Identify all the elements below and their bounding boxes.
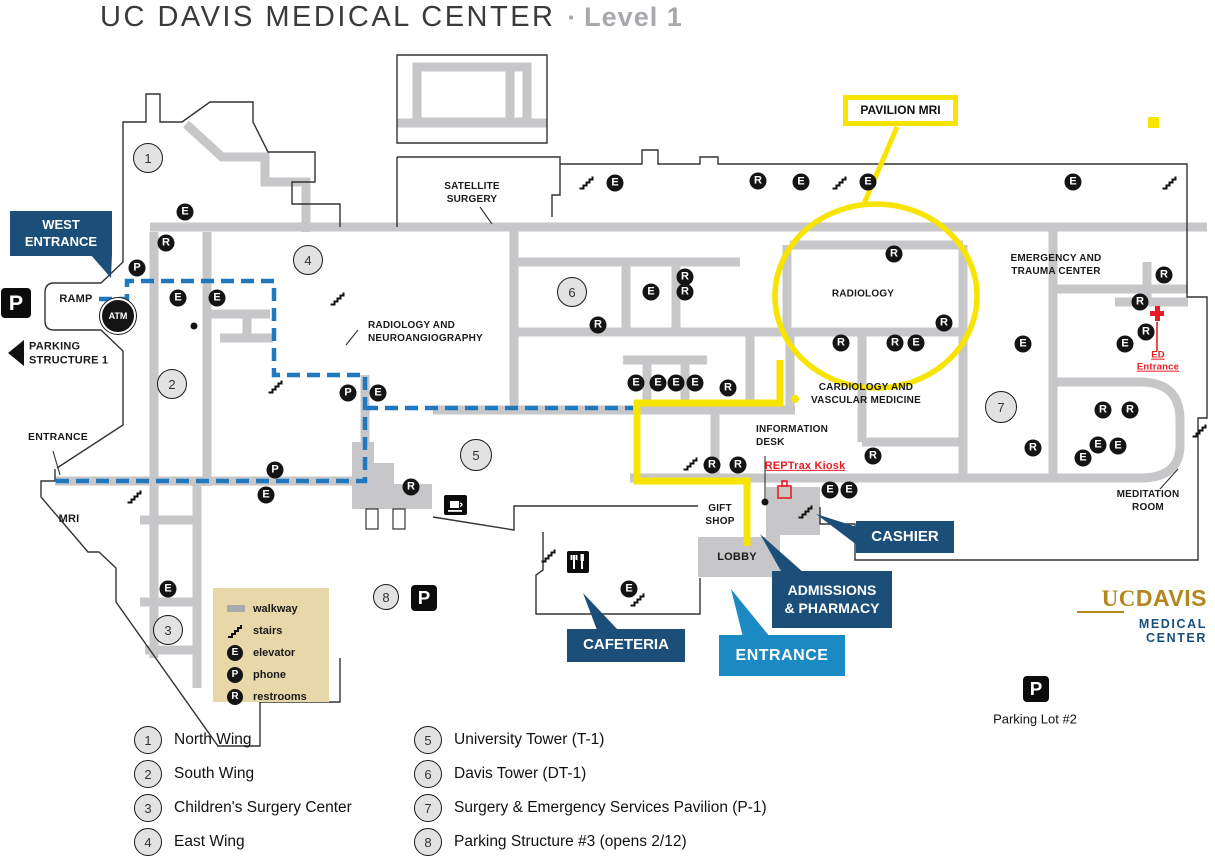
restrooms-icon: R <box>403 479 420 496</box>
elevator-icon: E <box>1090 437 1107 454</box>
walkway-swatch <box>227 605 253 612</box>
phone-icon: P <box>129 260 146 277</box>
map-label-emergency-trauma: EMERGENCY AND TRAUMA CENTER <box>1011 252 1102 278</box>
elevator-icon: E <box>860 174 877 191</box>
elevator-icon: E <box>160 581 177 598</box>
key-label-6: Davis Tower (DT-1) <box>454 765 586 783</box>
stairs-icon <box>630 592 647 607</box>
legend-item-stairs: stairs <box>227 620 329 641</box>
restrooms-icon: R <box>1025 440 1042 457</box>
elevator-icon: E <box>793 174 810 191</box>
restrooms-icon: R <box>720 380 737 397</box>
elevator-icon: E <box>227 645 253 661</box>
stairs-icon <box>330 291 347 306</box>
elevator-icon: E <box>177 204 194 221</box>
key-number-5: 5 <box>414 726 442 754</box>
legend-label: phone <box>253 669 286 681</box>
stairs-icon <box>541 548 558 563</box>
restrooms-icon: R <box>1156 267 1173 284</box>
map-label-entrance-west-side: ENTRANCE <box>28 431 88 445</box>
map-label-radiology-neuro: RADIOLOGY AND NEUROANGIOGRAPHY <box>368 319 483 345</box>
map-label-parking-structure-1: PARKING STRUCTURE 1 <box>29 340 108 369</box>
key-label-3: Children's Surgery Center <box>174 799 352 817</box>
elevator-icon: E <box>258 487 275 504</box>
map-number-5: 5 <box>460 439 492 471</box>
restrooms-icon: R <box>1132 294 1149 311</box>
key-number-4: 4 <box>134 828 162 856</box>
restrooms-icon: R <box>677 284 694 301</box>
legend-item-walkway: walkway <box>227 598 329 619</box>
legend-label: restrooms <box>253 691 307 703</box>
map-label-mri: MRI <box>59 512 80 526</box>
map-number-2: 2 <box>157 369 187 399</box>
map-label-cardiology: CARDIOLOGY AND VASCULAR MEDICINE <box>811 381 921 407</box>
legend-label: stairs <box>253 625 282 637</box>
parking-icon: P <box>1 288 31 318</box>
key-label-5: University Tower (T-1) <box>454 731 604 749</box>
callout-admissions-pharmacy: ADMISSIONS & PHARMACY <box>772 571 892 628</box>
restrooms-icon: R <box>887 335 904 352</box>
key-number-3: 3 <box>134 794 162 822</box>
stairs-icon <box>127 489 144 504</box>
restrooms-icon: R <box>750 173 767 190</box>
legend-item-restrooms: Rrestrooms <box>227 686 329 707</box>
logo-uc: UC <box>1102 586 1136 611</box>
restrooms-icon: R <box>730 457 747 474</box>
logo-medical-center: MEDICAL CENTER <box>1077 617 1207 645</box>
key-label-8: Parking Structure #3 (opens 2/12) <box>454 833 687 851</box>
logo-davis: DAVIS <box>1136 585 1207 611</box>
key-number-6: 6 <box>414 760 442 788</box>
parking-lot-2-label: Parking Lot #2 <box>993 712 1077 727</box>
elevator-icon: E <box>170 290 187 307</box>
key-item-8: 8Parking Structure #3 (opens 2/12) <box>414 825 834 859</box>
key-item-5: 5University Tower (T-1) <box>414 723 834 757</box>
callout-cashier: CASHIER <box>856 521 954 553</box>
restrooms-icon: R <box>1122 402 1139 419</box>
restrooms-icon: R <box>1138 324 1155 341</box>
legend-label: walkway <box>253 603 298 615</box>
callout-main-entrance: ENTRANCE <box>719 635 845 676</box>
map-dot <box>191 323 198 330</box>
key-list-column-2: 5University Tower (T-1)6Davis Tower (DT-… <box>414 723 834 859</box>
restrooms-icon: R <box>936 315 953 332</box>
map-number-7: 7 <box>985 391 1017 423</box>
key-number-1: 1 <box>134 726 162 754</box>
floor-map-page: UC DAVIS MEDICAL CENTER·Level 1 <box>0 0 1215 861</box>
map-number-3: 3 <box>153 615 183 645</box>
map-legend: walkwaystairsEelevatorPphoneRrestrooms <box>213 588 329 702</box>
map-label-ramp: RAMP <box>59 292 92 306</box>
key-label-7: Surgery & Emergency Services Pavilion (P… <box>454 799 767 817</box>
map-label-ed-entrance: ED Entrance <box>1130 350 1187 375</box>
restrooms-icon: R <box>158 235 175 252</box>
elevator-icon: E <box>227 645 243 661</box>
map-label-lobby: LOBBY <box>717 550 757 564</box>
key-label-2: South Wing <box>174 765 254 783</box>
map-label-radiology: RADIOLOGY <box>832 288 894 301</box>
stairs-icon <box>832 175 849 190</box>
ucdavis-logo: UCDAVIS MEDICAL CENTER <box>1077 587 1207 645</box>
map-label-gift-shop: GIFT SHOP <box>705 502 734 528</box>
elevator-icon: E <box>822 482 839 499</box>
phone-icon: P <box>227 667 243 683</box>
map-label-reptrax-kiosk: REPTrax Kiosk <box>765 459 846 473</box>
restrooms-icon: R <box>1095 402 1112 419</box>
key-label-1: North Wing <box>174 731 252 749</box>
restrooms-icon: R <box>227 689 243 705</box>
restrooms-icon: R <box>590 317 607 334</box>
callout-pavilion-mri: PAVILION MRI <box>843 95 958 126</box>
parking-icon: P <box>411 585 437 611</box>
logo-rule <box>1077 611 1124 613</box>
map-dot <box>762 499 769 506</box>
elevator-icon: E <box>1117 336 1134 353</box>
legend-label: elevator <box>253 647 295 659</box>
key-number-2: 2 <box>134 760 162 788</box>
stairs-icon <box>798 504 815 519</box>
restrooms-icon: R <box>886 246 903 263</box>
map-label-information-desk: INFORMATION DESK <box>756 423 828 449</box>
stairs-icon <box>1192 423 1209 438</box>
elevator-icon: E <box>650 375 667 392</box>
legend-items: walkwaystairsEelevatorPphoneRrestrooms <box>227 598 329 707</box>
map-label-satellite-surgery: SATELLITE SURGERY <box>444 180 500 206</box>
stairs-icon <box>227 623 253 638</box>
stairs-icon <box>683 456 700 471</box>
phone-icon: P <box>227 667 253 683</box>
phone-icon: P <box>340 385 357 402</box>
restrooms-icon: R <box>704 457 721 474</box>
elevator-icon: E <box>668 375 685 392</box>
elevator-icon: E <box>1110 438 1127 455</box>
phone-icon: P <box>267 462 284 479</box>
legend-item-phone: Pphone <box>227 664 329 685</box>
elevator-icon: E <box>1015 336 1032 353</box>
callout-cafeteria: CAFETERIA <box>567 629 685 662</box>
parking-icon: P <box>1023 676 1049 702</box>
stairs-icon <box>579 175 596 190</box>
elevator-icon: E <box>209 290 226 307</box>
elevator-icon: E <box>643 284 660 301</box>
stairs-icon <box>268 379 285 394</box>
key-item-6: 6Davis Tower (DT-1) <box>414 757 834 791</box>
map-number-1: 1 <box>133 143 163 173</box>
elevator-icon: E <box>841 482 858 499</box>
key-number-8: 8 <box>414 828 442 856</box>
walkway-swatch-bar <box>227 605 245 612</box>
elevator-icon: E <box>628 375 645 392</box>
elevator-icon: E <box>607 175 624 192</box>
restrooms-icon: R <box>865 448 882 465</box>
elevator-icon: E <box>1075 450 1092 467</box>
map-number-6: 6 <box>557 277 587 307</box>
map-label-meditation-room: MEDITATION ROOM <box>1117 488 1180 514</box>
elevator-icon: E <box>908 335 925 352</box>
stairs-icon <box>1162 175 1179 190</box>
map-number-8: 8 <box>373 584 399 610</box>
elevator-icon: E <box>1065 174 1082 191</box>
map-number-4: 4 <box>293 245 323 275</box>
restrooms-icon: R <box>833 335 850 352</box>
callout-west-entrance: WEST ENTRANCE <box>10 211 112 256</box>
atm-icon: ATM <box>100 298 136 334</box>
key-number-7: 7 <box>414 794 442 822</box>
elevator-icon: E <box>370 385 387 402</box>
restrooms-icon: R <box>227 689 253 705</box>
legend-item-elevator: Eelevator <box>227 642 329 663</box>
key-label-4: East Wing <box>174 833 245 851</box>
key-item-7: 7Surgery & Emergency Services Pavilion (… <box>414 791 834 825</box>
elevator-icon: E <box>687 375 704 392</box>
